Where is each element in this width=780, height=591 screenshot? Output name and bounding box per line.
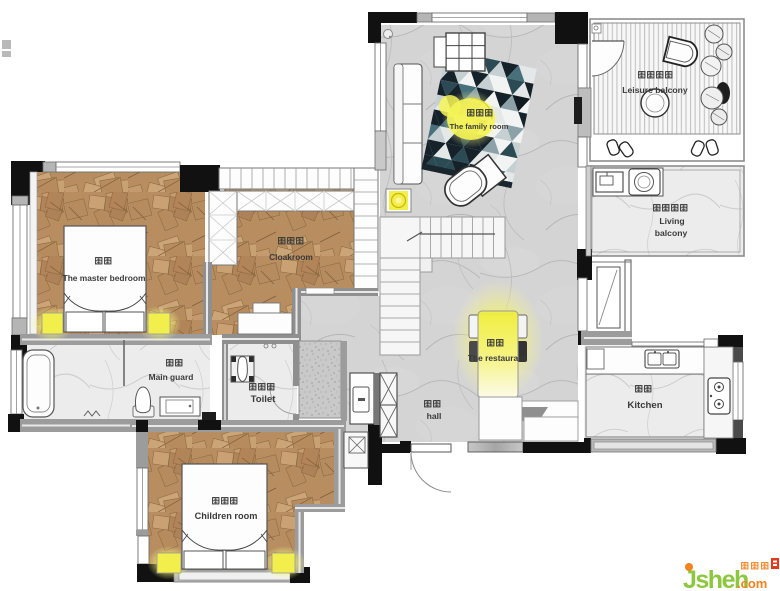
svg-text:hall: hall bbox=[427, 411, 442, 421]
svg-text:Toilet: Toilet bbox=[251, 394, 277, 405]
svg-text:Leisure balcony: Leisure balcony bbox=[622, 85, 688, 95]
svg-text:The restaurant: The restaurant bbox=[468, 353, 526, 363]
svg-text:The master bedroom: The master bedroom bbox=[63, 273, 146, 283]
svg-text:Children room: Children room bbox=[195, 511, 258, 521]
svg-text:balcony: balcony bbox=[655, 228, 688, 238]
svg-text:Cloakroom: Cloakroom bbox=[269, 252, 313, 262]
svg-text:Main guard: Main guard bbox=[149, 372, 194, 382]
svg-text:Kitchen: Kitchen bbox=[627, 400, 662, 411]
svg-text:The family room: The family room bbox=[450, 122, 509, 131]
svg-text:.com: .com bbox=[737, 576, 767, 591]
svg-text:Living: Living bbox=[659, 216, 684, 226]
